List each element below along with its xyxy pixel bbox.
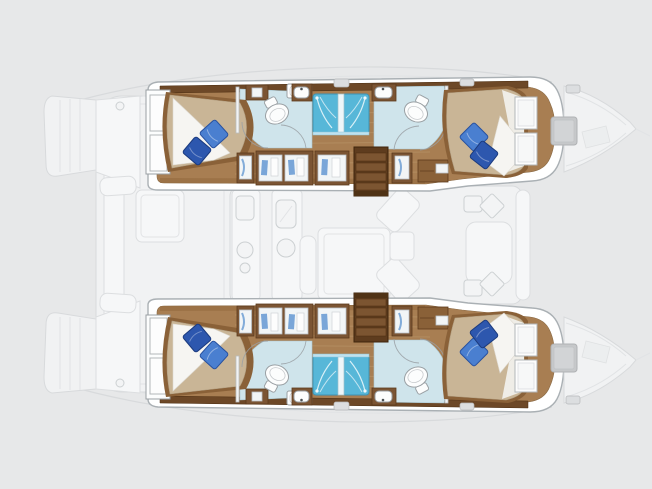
cockpit-table: [136, 190, 184, 242]
hanging-garment: [261, 160, 268, 175]
shower-stalls: [313, 94, 369, 135]
galley-sink-icon: [237, 242, 253, 258]
bow-window-inner: [518, 136, 534, 162]
step-tread: [356, 183, 386, 190]
seat-cushion: [464, 280, 482, 296]
shower-partition: [338, 94, 344, 134]
bow-deck-window-inner: [554, 120, 574, 142]
saloon-front-band: [516, 190, 530, 300]
chaise: [300, 236, 316, 294]
hanging-garment: [297, 158, 304, 176]
burner-icon: [277, 239, 295, 257]
seat: [390, 232, 414, 260]
saloon-table: [318, 228, 390, 300]
saloon-ghost: [230, 186, 530, 304]
hanging-garment: [332, 158, 340, 177]
step-tread: [356, 153, 386, 161]
bow-window-inner: [518, 100, 534, 126]
faucet-icon: [300, 88, 303, 91]
fridge-icon: [236, 196, 254, 220]
step-tread: [356, 173, 386, 181]
winch-icon: [116, 102, 124, 110]
step-tread: [356, 163, 386, 171]
steps-landing: [354, 191, 388, 196]
wardrobe-door: [285, 155, 308, 181]
companionway-steps: [354, 147, 388, 196]
hanging-garment: [271, 158, 278, 176]
hanging-garment: [288, 160, 295, 175]
seat-cushion: [464, 196, 482, 212]
bath-wall: [236, 87, 239, 133]
shower-glass: [313, 132, 369, 135]
locker-item: [252, 88, 262, 97]
deck-hatch-icon: [566, 85, 580, 93]
dresser-tray: [436, 164, 448, 173]
boat-floorplan: [0, 0, 652, 489]
deck-hatch-icon: [334, 79, 349, 87]
forward-cabin: [442, 86, 537, 178]
deck-hatch-icon: [460, 79, 474, 86]
galley-sink-icon: [240, 263, 250, 273]
hanging-garment: [321, 159, 328, 175]
faucet-icon: [382, 88, 385, 91]
davit: [99, 176, 136, 196]
